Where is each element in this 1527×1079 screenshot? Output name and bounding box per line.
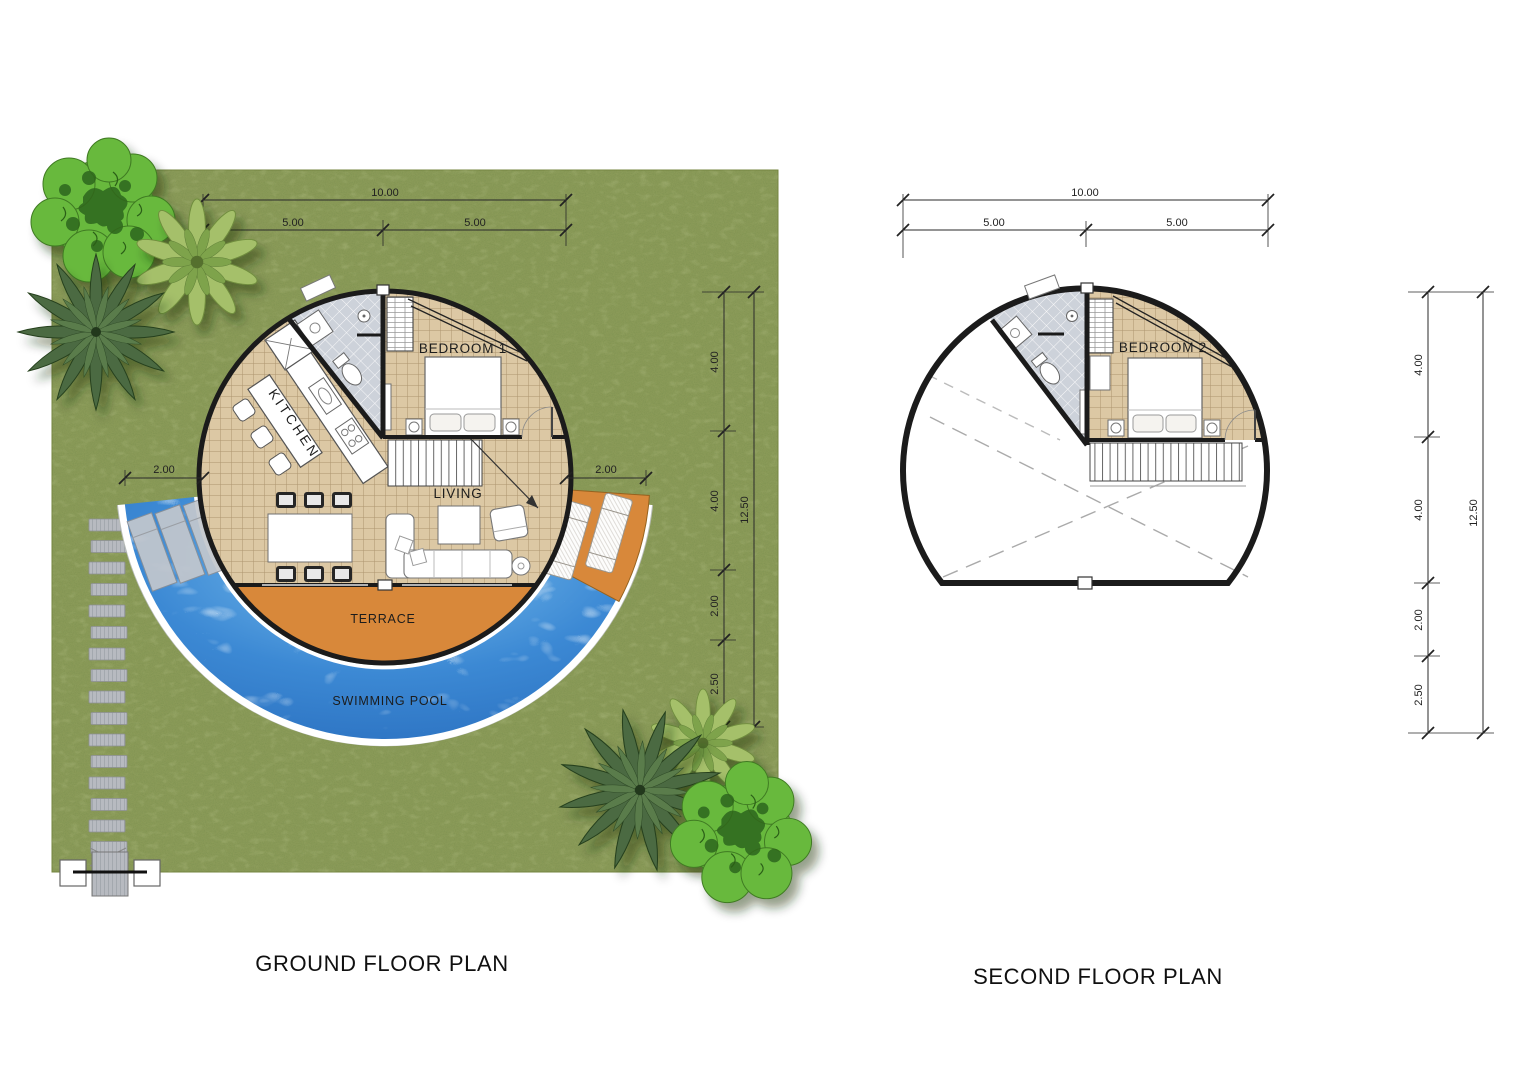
wardrobe-1 (387, 297, 413, 351)
shower-head-2 (1067, 311, 1078, 322)
gf-dim-seg1: 4.00 (709, 351, 721, 372)
gf-dim-right-offset: 2.00 (595, 464, 616, 476)
sf-dim-total-width: 10.00 (1071, 187, 1099, 199)
nightstand-left (406, 419, 422, 435)
sf-dim-left-half: 5.00 (983, 217, 1004, 229)
sf-dim-seg2: 4.00 (1413, 499, 1425, 520)
label-swimming-pool: SWIMMING POOL (332, 694, 447, 708)
gf-dim-left-offset: 2.00 (153, 464, 174, 476)
gf-dim-seg4: 2.50 (709, 673, 721, 694)
gf-dim-total-height: 12.50 (739, 496, 751, 524)
sf-dim-right-half: 5.00 (1166, 217, 1187, 229)
staircase-second (1090, 443, 1246, 486)
side-table (512, 557, 530, 575)
nightstand-2-right (1204, 420, 1220, 436)
second-floor-title: SECOND FLOOR PLAN (973, 964, 1223, 989)
sf-dim-total-height: 12.50 (1468, 499, 1480, 527)
shower-head (358, 310, 370, 322)
label-bedroom-1: BEDROOM 1 (419, 341, 507, 356)
label-bedroom-2: BEDROOM 2 (1119, 340, 1207, 355)
gf-dim-total-width: 10.00 (371, 187, 399, 199)
blueprint-page: KITCHEN BEDROOM 1 LIVING TERRACE SWIMMIN… (0, 0, 1527, 1079)
nightstand-right (503, 419, 519, 435)
coffee-table (438, 506, 480, 544)
second-floor-plan: BEDROOM 2 10.00 (897, 187, 1494, 989)
sf-dim-seg4: 2.50 (1413, 684, 1425, 705)
gf-dim-left-half: 5.00 (282, 217, 303, 229)
armchair (489, 504, 528, 541)
dining-table (268, 514, 352, 562)
gf-dim-right-half: 5.00 (464, 217, 485, 229)
wardrobe-2 (1089, 299, 1113, 390)
sf-dim-seg3: 2.00 (1413, 609, 1425, 630)
ground-floor-plan: KITCHEN BEDROOM 1 LIVING TERRACE SWIMMIN… (18, 138, 812, 976)
nightstand-2-left (1108, 420, 1124, 436)
gf-dim-seg2: 4.00 (709, 490, 721, 511)
label-living: LIVING (433, 486, 482, 501)
floor-plans-drawing: KITCHEN BEDROOM 1 LIVING TERRACE SWIMMIN… (0, 0, 1527, 1079)
label-terrace: TERRACE (350, 612, 415, 626)
sf-dim-seg1: 4.00 (1413, 354, 1425, 375)
gf-dim-seg3: 2.00 (709, 595, 721, 616)
ground-floor-title: GROUND FLOOR PLAN (255, 951, 508, 976)
